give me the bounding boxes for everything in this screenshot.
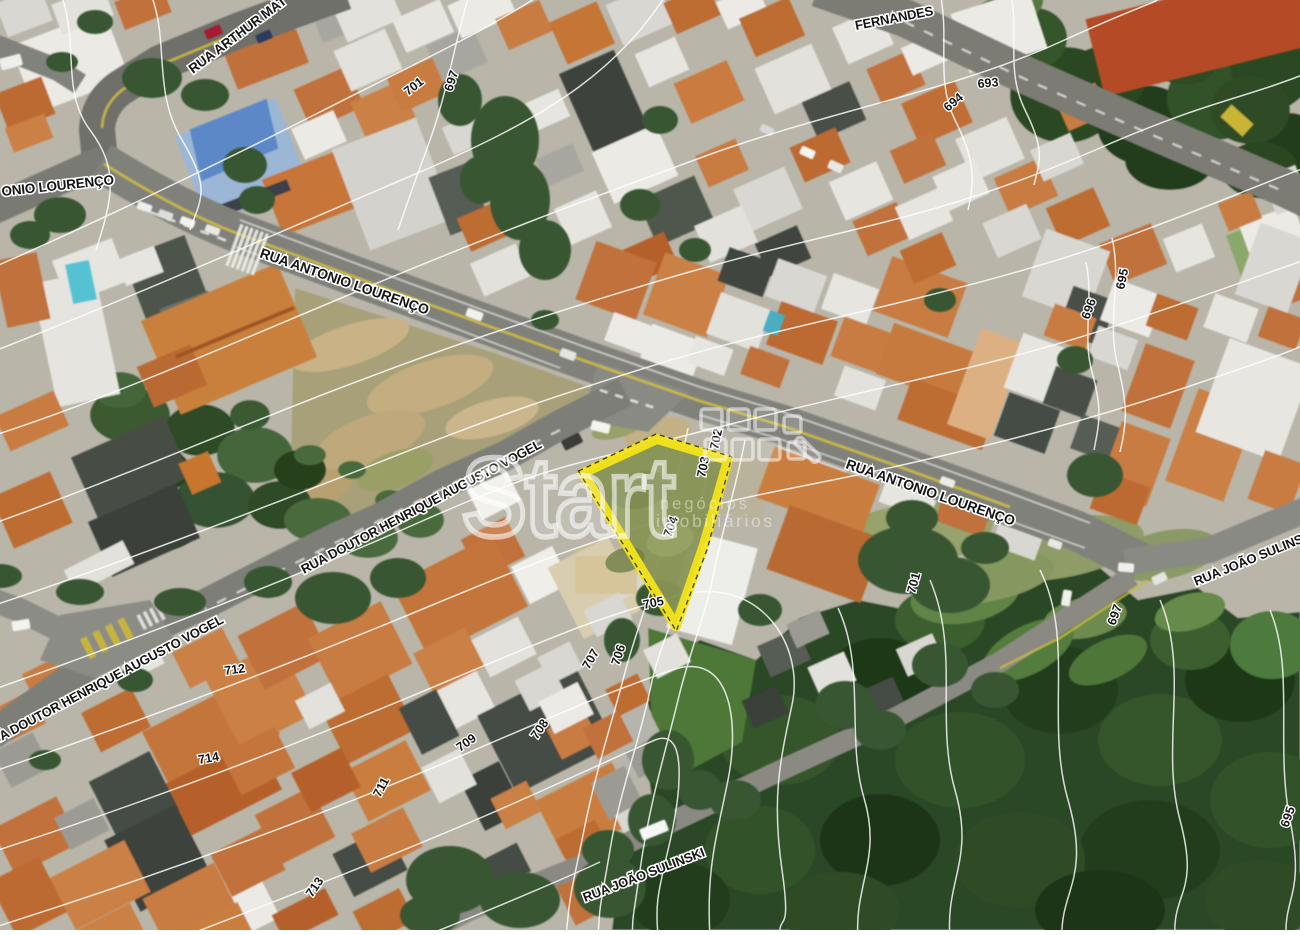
svg-text:712: 712 [223, 661, 246, 678]
svg-text:imobiliários: imobiliários [656, 511, 775, 531]
svg-text:Start: Start [462, 435, 675, 560]
svg-text:693: 693 [977, 75, 999, 91]
